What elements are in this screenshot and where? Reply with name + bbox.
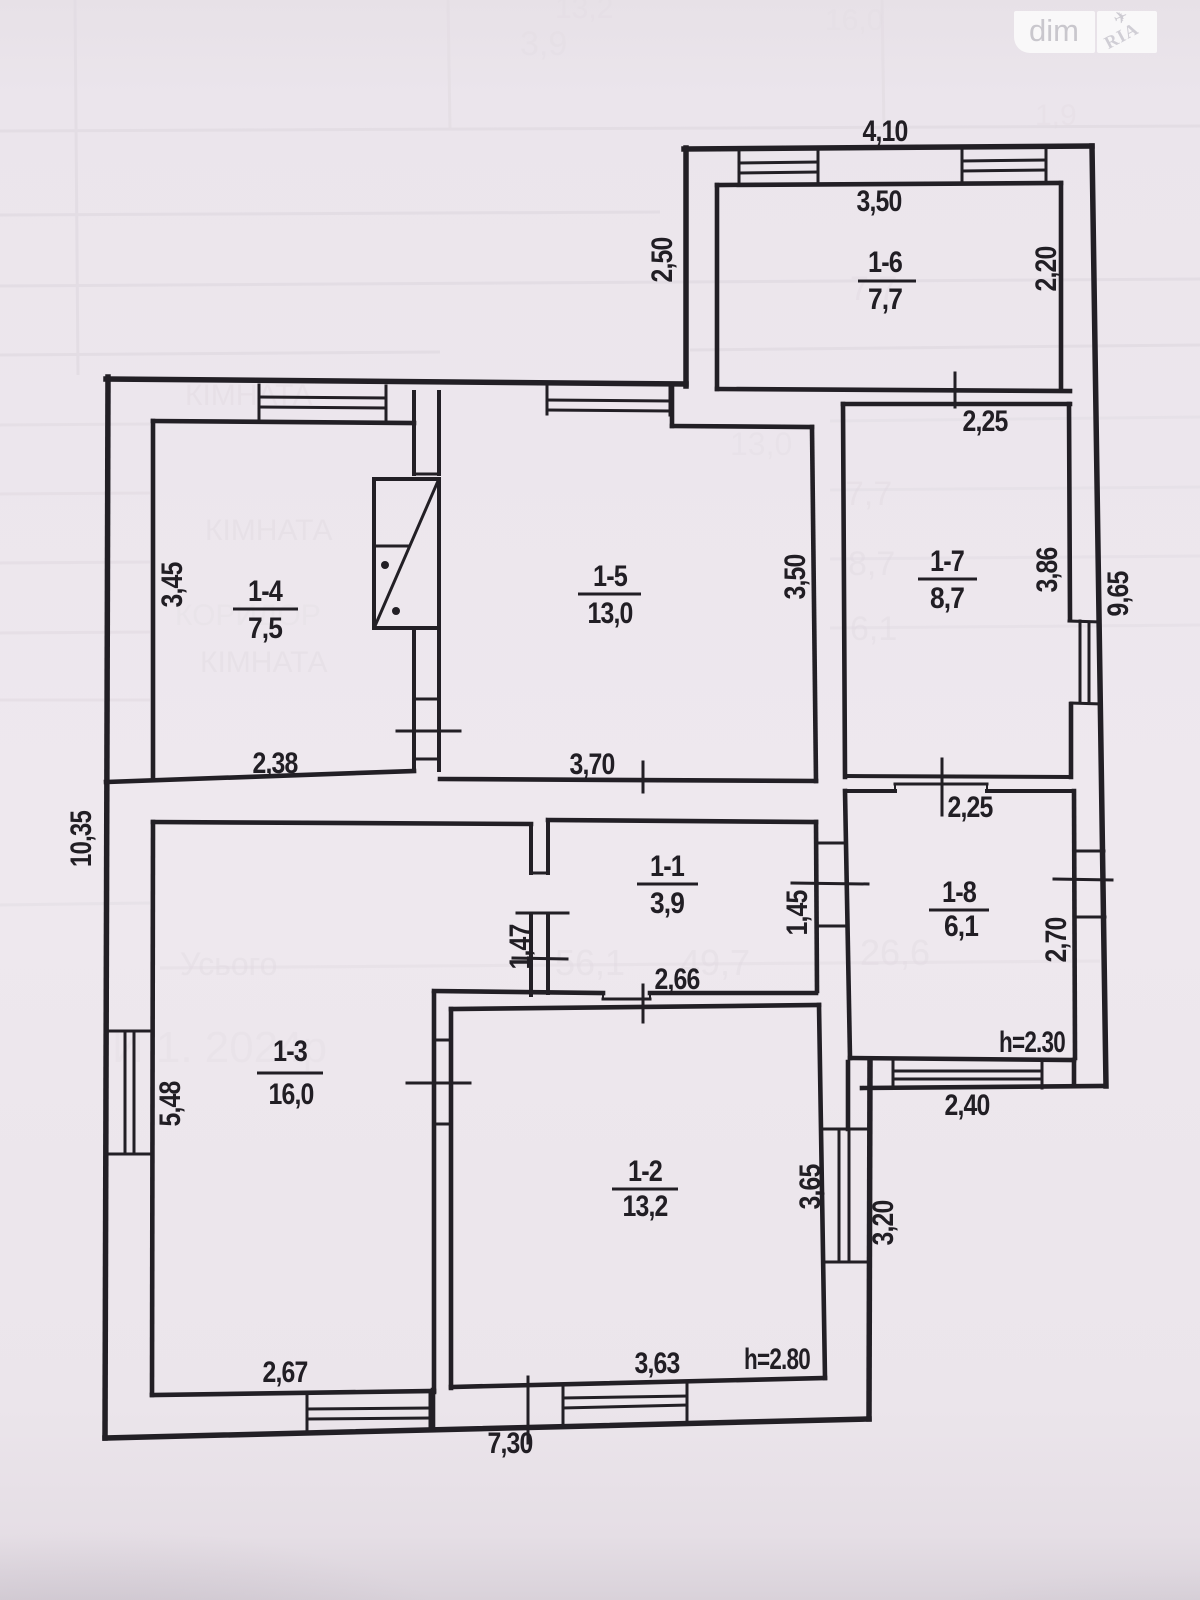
- svg-text:2,25: 2,25: [963, 405, 1008, 438]
- svg-text:9,65: 9,65: [1102, 571, 1135, 616]
- svg-text:h=2.30: h=2.30: [999, 1026, 1065, 1059]
- svg-text:1-7: 1-7: [930, 545, 964, 578]
- svg-text:3,50: 3,50: [857, 185, 902, 218]
- svg-text:8,7: 8,7: [930, 582, 964, 615]
- svg-text:10,35: 10,35: [65, 811, 98, 867]
- svg-text:1,45: 1,45: [781, 890, 814, 935]
- svg-text:1-4: 1-4: [248, 575, 283, 608]
- svg-text:1-2: 1-2: [628, 1155, 662, 1188]
- svg-text:3,63: 3,63: [635, 1347, 680, 1380]
- svg-text:13,2: 13,2: [623, 1190, 668, 1223]
- svg-text:1-5: 1-5: [593, 560, 627, 593]
- svg-text:2,25: 2,25: [948, 791, 993, 824]
- svg-text:5,48: 5,48: [154, 1081, 187, 1126]
- svg-text:16,0: 16,0: [269, 1078, 314, 1111]
- svg-text:Усього: Усього: [180, 946, 277, 982]
- svg-text:2,50: 2,50: [646, 237, 679, 282]
- svg-text:2,40: 2,40: [945, 1089, 990, 1122]
- svg-text:3,70: 3,70: [570, 748, 615, 781]
- svg-text:2,20: 2,20: [1030, 246, 1063, 291]
- svg-text:13,0: 13,0: [730, 426, 792, 462]
- svg-text:1,47: 1,47: [504, 924, 537, 969]
- svg-text:6,1: 6,1: [944, 910, 978, 943]
- svg-text:2,67: 2,67: [263, 1356, 308, 1389]
- svg-text:КІМНАТА: КІМНАТА: [200, 646, 327, 679]
- svg-text:3,45: 3,45: [156, 562, 189, 607]
- svg-text:3,9: 3,9: [650, 887, 684, 920]
- svg-text:13,2: 13,2: [555, 0, 613, 25]
- svg-text:1-8: 1-8: [942, 876, 976, 909]
- svg-text:1-1: 1-1: [650, 850, 684, 883]
- svg-text:1-3: 1-3: [273, 1035, 307, 1068]
- svg-text:3,50: 3,50: [779, 554, 812, 599]
- svg-text:56,1: 56,1: [555, 942, 625, 983]
- svg-text:2,70: 2,70: [1040, 917, 1073, 962]
- svg-text:16,0: 16,0: [825, 4, 883, 37]
- svg-text:3,65: 3,65: [794, 1164, 827, 1209]
- svg-text:7,7: 7,7: [868, 283, 902, 316]
- svg-text:3,20: 3,20: [867, 1200, 900, 1245]
- svg-text:7,7: 7,7: [845, 475, 892, 513]
- svg-text:3,86: 3,86: [1031, 547, 1064, 592]
- svg-text:1,9: 1,9: [1035, 99, 1077, 132]
- svg-text:КІМНАТА: КІМНАТА: [205, 514, 332, 547]
- svg-text:26,6: 26,6: [860, 932, 930, 973]
- svg-text:1-6: 1-6: [868, 246, 902, 279]
- svg-text:2,38: 2,38: [253, 747, 298, 780]
- svg-text:3,9: 3,9: [520, 25, 567, 63]
- svg-text:8,7: 8,7: [848, 545, 895, 583]
- svg-text:6,1: 6,1: [850, 610, 897, 648]
- svg-text:13,0: 13,0: [588, 597, 633, 630]
- svg-text:h=2.80: h=2.80: [744, 1343, 810, 1376]
- svg-text:7,30: 7,30: [488, 1427, 533, 1460]
- svg-text:2,66: 2,66: [655, 963, 700, 996]
- svg-text:7,5: 7,5: [248, 612, 282, 645]
- svg-text:4,10: 4,10: [863, 115, 908, 148]
